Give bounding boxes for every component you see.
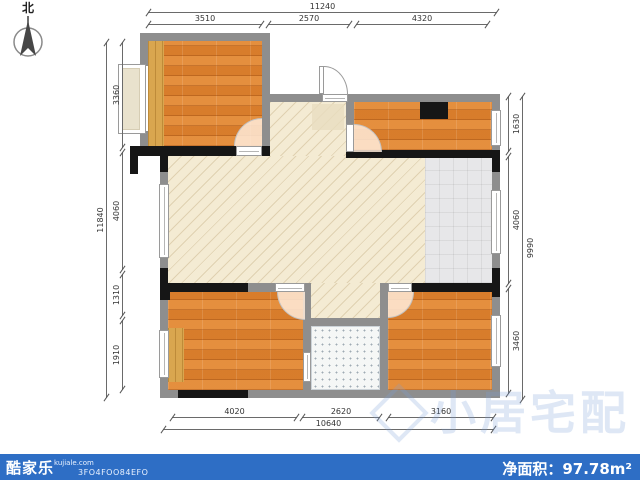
dim-bottom-seg2: 2620 — [302, 417, 380, 418]
living-right-window — [491, 190, 501, 254]
dim-label: 3510 — [195, 15, 215, 23]
dim-label: 1910 — [113, 345, 121, 365]
dim-label: 2620 — [331, 408, 351, 416]
dim-label: 2570 — [299, 15, 319, 23]
wall — [140, 41, 148, 66]
wall-black — [160, 156, 168, 172]
bathroom-floor — [311, 326, 380, 390]
dim-label: 3160 — [431, 408, 451, 416]
dim-left-seg3: 1310 — [122, 274, 123, 316]
dim-left-overall: 11840 — [106, 42, 107, 398]
bedroom-bottomleft-bay-sill — [168, 328, 184, 382]
dim-label: 4320 — [412, 15, 432, 23]
flue-shaft — [420, 102, 448, 119]
dim-label: 4020 — [224, 408, 244, 416]
dim-label: 3360 — [113, 85, 121, 105]
wall-black — [492, 283, 500, 297]
door-threshold — [388, 283, 412, 292]
wall — [262, 94, 322, 102]
wall — [262, 33, 270, 94]
dim-top-seg3: 4320 — [356, 24, 488, 25]
wall — [348, 94, 500, 102]
dining-tile-floor — [425, 156, 492, 283]
dim-top-overall: 11240 — [148, 12, 497, 13]
dim-bottom-seg1: 4020 — [172, 417, 297, 418]
wall-black — [492, 268, 500, 284]
dim-label: 9990 — [527, 238, 535, 258]
dim-right-seg2: 4060 — [508, 156, 509, 284]
wall-black — [410, 283, 492, 292]
bathroom-top-wall — [303, 318, 388, 326]
bay-window-topleft-sill — [122, 68, 140, 130]
dim-bottom-seg3: 3160 — [388, 417, 494, 418]
bedroom-bottomleft-window — [159, 330, 169, 378]
living-left-window — [159, 184, 169, 258]
dim-left-seg4: 1910 — [122, 320, 123, 390]
dim-bottom-overall: 10640 — [163, 429, 494, 430]
net-area-label: 净面积：97.78m² — [502, 458, 632, 479]
dim-label: 3460 — [513, 331, 521, 351]
dim-top-seg2: 2570 — [268, 24, 350, 25]
wall-black — [492, 150, 500, 172]
door-leaf — [346, 124, 354, 152]
dim-right-overall: 9990 — [522, 96, 523, 400]
bathroom-door — [303, 352, 311, 382]
wall-black — [130, 146, 138, 174]
entry-door-swing-arc — [324, 66, 348, 94]
entry-mat — [312, 104, 344, 130]
dim-label: 1630 — [513, 114, 521, 134]
dim-label: 10640 — [316, 420, 341, 428]
dim-label: 11240 — [310, 3, 335, 11]
corridor-floor — [311, 283, 380, 318]
wall — [140, 33, 270, 41]
wall — [248, 283, 275, 292]
wall-black — [166, 283, 248, 292]
plan-code: 3FO4FOO84EFO — [78, 468, 148, 477]
door-threshold — [236, 146, 262, 156]
wall — [262, 102, 270, 146]
wall-black — [160, 268, 168, 284]
dim-label: 4060 — [113, 201, 121, 221]
dim-right-seg3: 3460 — [508, 288, 509, 394]
wall — [346, 102, 354, 124]
door-threshold — [275, 283, 305, 292]
wall-black — [178, 390, 248, 398]
entry-door-threshold — [322, 94, 348, 102]
bathroom-right-wall — [380, 326, 388, 390]
dim-left-seg1: 3360 — [122, 42, 123, 148]
living-room-floor — [168, 156, 425, 283]
bedroom-bottomright-window — [491, 315, 501, 367]
kujiale-site: kujiale.com — [54, 459, 94, 467]
kujiale-logo: 酷家乐 — [6, 457, 54, 478]
dim-right-seg1: 1630 — [508, 96, 509, 152]
bedroom-topleft-wardrobe-strip — [148, 41, 164, 146]
dim-left-seg2: 4060 — [122, 152, 123, 270]
wall-black — [150, 146, 236, 156]
dim-label: 1310 — [113, 285, 121, 305]
wall-black — [262, 146, 270, 156]
bedroom-topright-window — [491, 110, 501, 146]
dim-label: 4060 — [513, 210, 521, 230]
dim-top-seg1: 3510 — [148, 24, 262, 25]
dim-label: 11840 — [97, 207, 105, 232]
